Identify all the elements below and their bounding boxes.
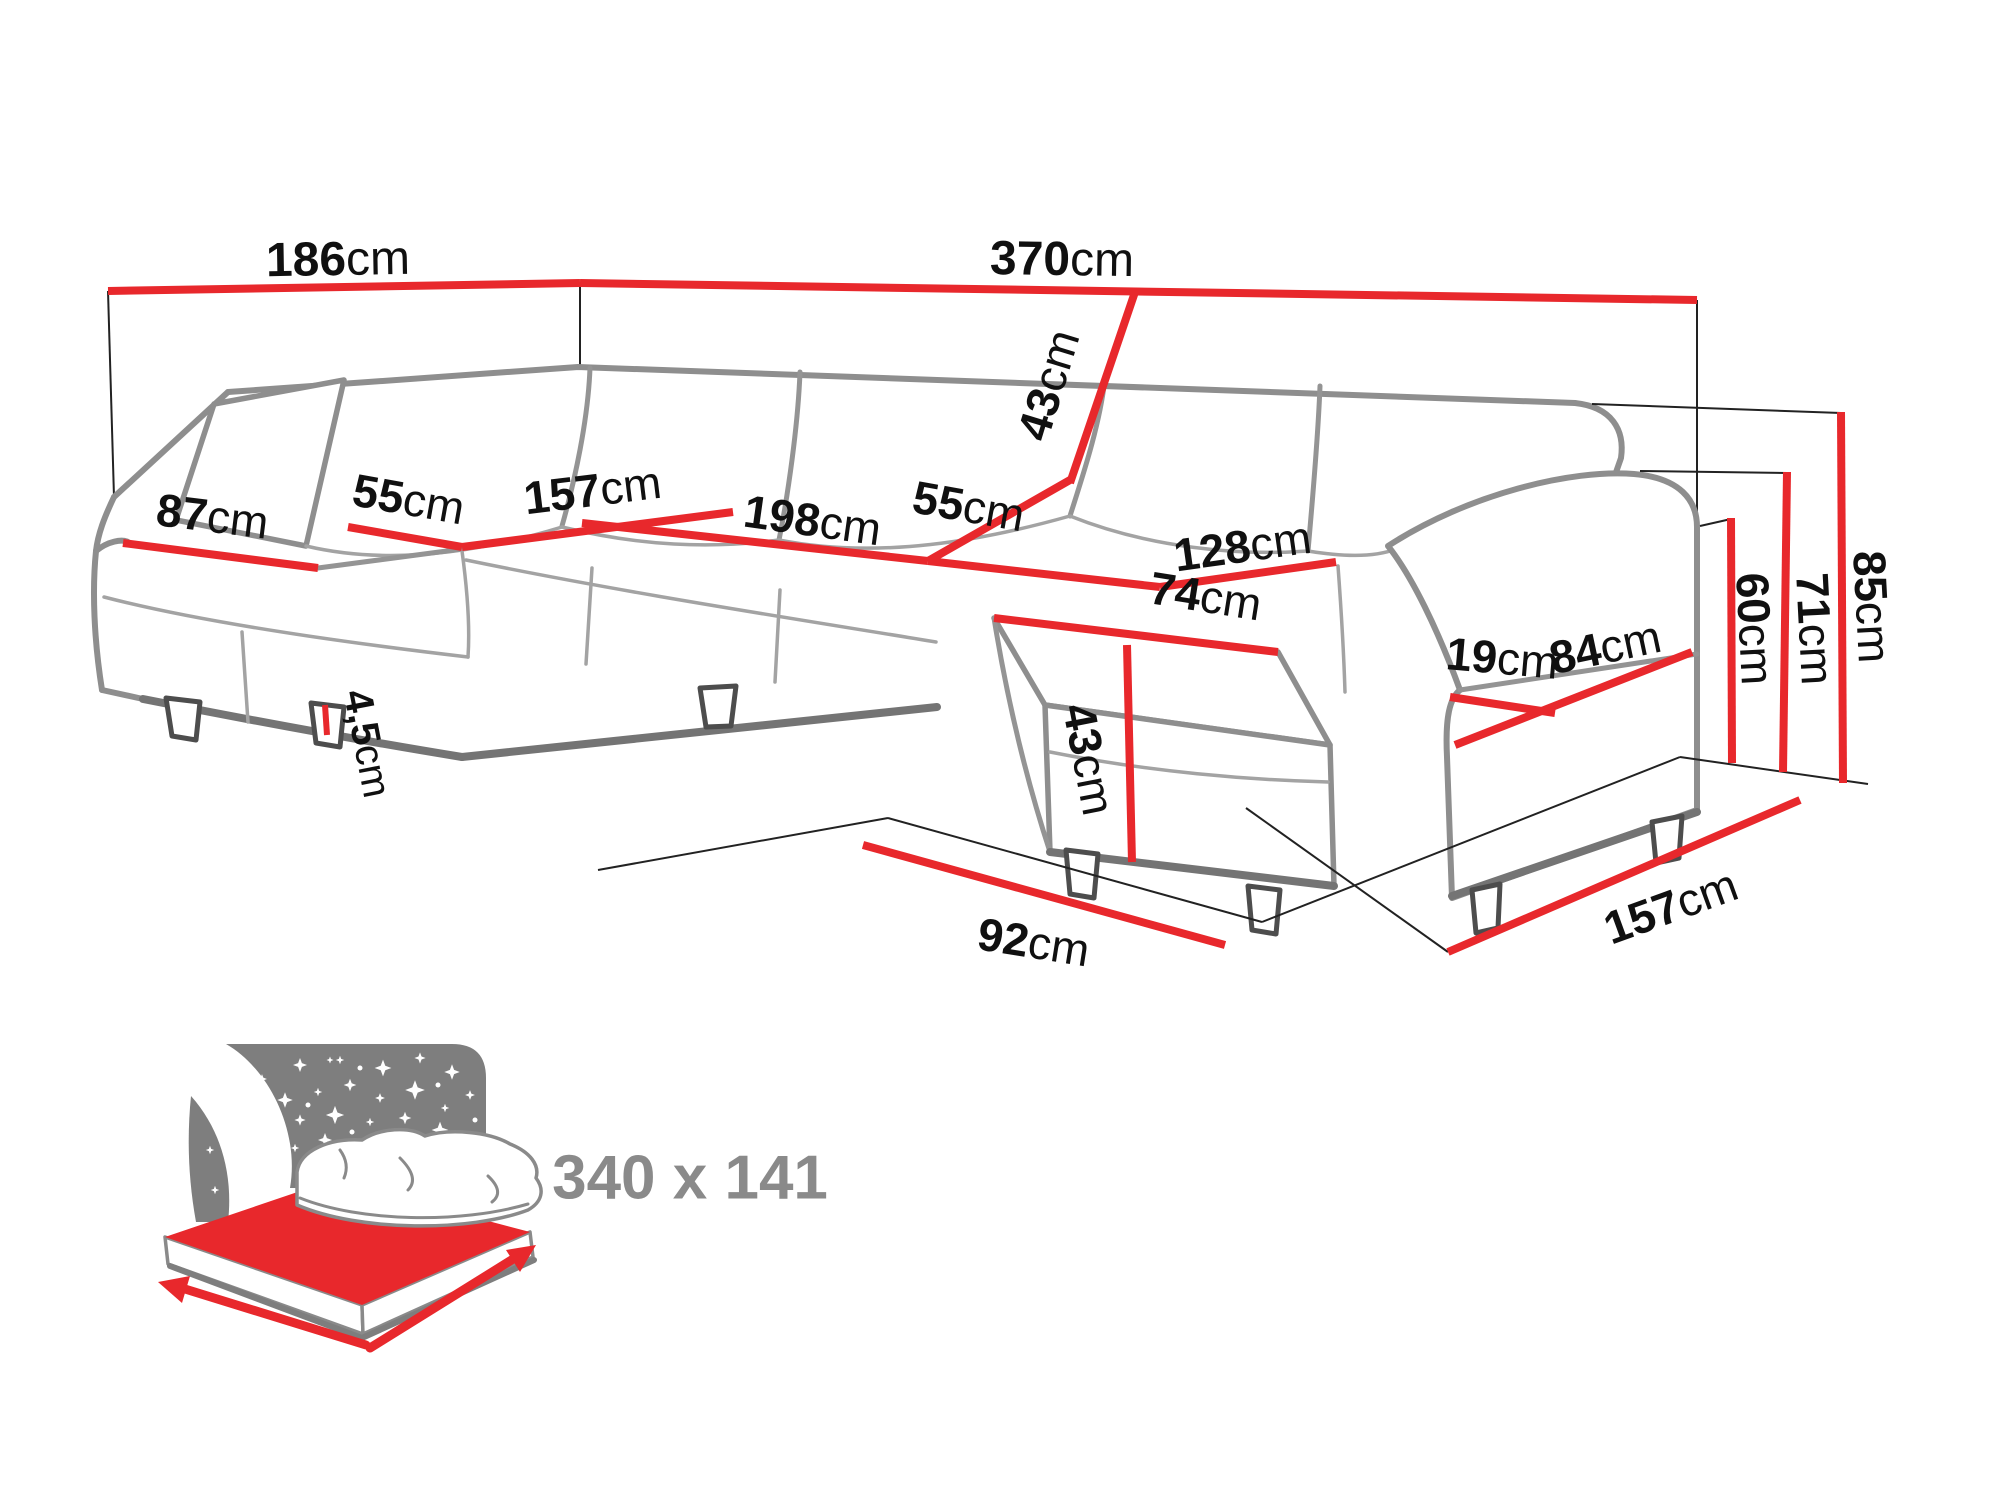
- dim-label-seat-depth-right: 55cm: [909, 471, 1029, 542]
- sofa-dimension-diagram-page: 186cm 370cm 87cm 55cm 157cm 198cm 55cm 4…: [0, 0, 2000, 1499]
- dim-label-seat-width-corner: 157cm: [521, 456, 664, 524]
- sleeping-function-icon: 340 x 141: [0, 1044, 828, 1348]
- sofa-leg: [1248, 886, 1280, 934]
- dim-line-ottoman-height: [1127, 645, 1132, 862]
- dim-label-side-floor-depth: 157cm: [1597, 858, 1745, 954]
- dim-label-armrest-width: 19cm: [1444, 627, 1561, 689]
- dim-label-armrest-height: 71cm: [1786, 571, 1844, 686]
- sofa-leg: [166, 698, 200, 740]
- moon-crescent-shape: [189, 1096, 230, 1222]
- dim-label-seat-depth-left: 55cm: [349, 464, 469, 535]
- dim-label-wall-left: 186cm: [265, 231, 410, 287]
- dim-line-total-height: [1841, 412, 1843, 783]
- pillows-and-duvet: [297, 1130, 541, 1226]
- dim-label-wall-back: 370cm: [990, 232, 1135, 287]
- dim-label-seat-height: 60cm: [1726, 571, 1784, 686]
- dim-label-leg-height: 4,5cm: [335, 686, 399, 801]
- dim-label-ottoman-floor-depth: 92cm: [974, 908, 1093, 977]
- dim-line-seat-width-corner: [462, 512, 733, 547]
- sofa-leg: [700, 686, 736, 727]
- dim-label-total-height: 85cm: [1843, 549, 1901, 664]
- wall-projection-lines: [108, 283, 1697, 527]
- sofa-leg: [1066, 850, 1098, 898]
- dim-line-wall-back: [580, 283, 1697, 300]
- dim-line-chaise-width: [123, 543, 318, 568]
- dim-line-armrest-height: [1783, 472, 1787, 772]
- dim-line-seat-edge: [928, 561, 1160, 587]
- dim-line-leg-height: [325, 705, 327, 735]
- sleeping-area-size: 340 x 141: [552, 1143, 828, 1212]
- sofa-dimension-diagram: 186cm 370cm 87cm 55cm 157cm 198cm 55cm 4…: [0, 0, 2000, 1499]
- sofa-leg: [1472, 884, 1500, 933]
